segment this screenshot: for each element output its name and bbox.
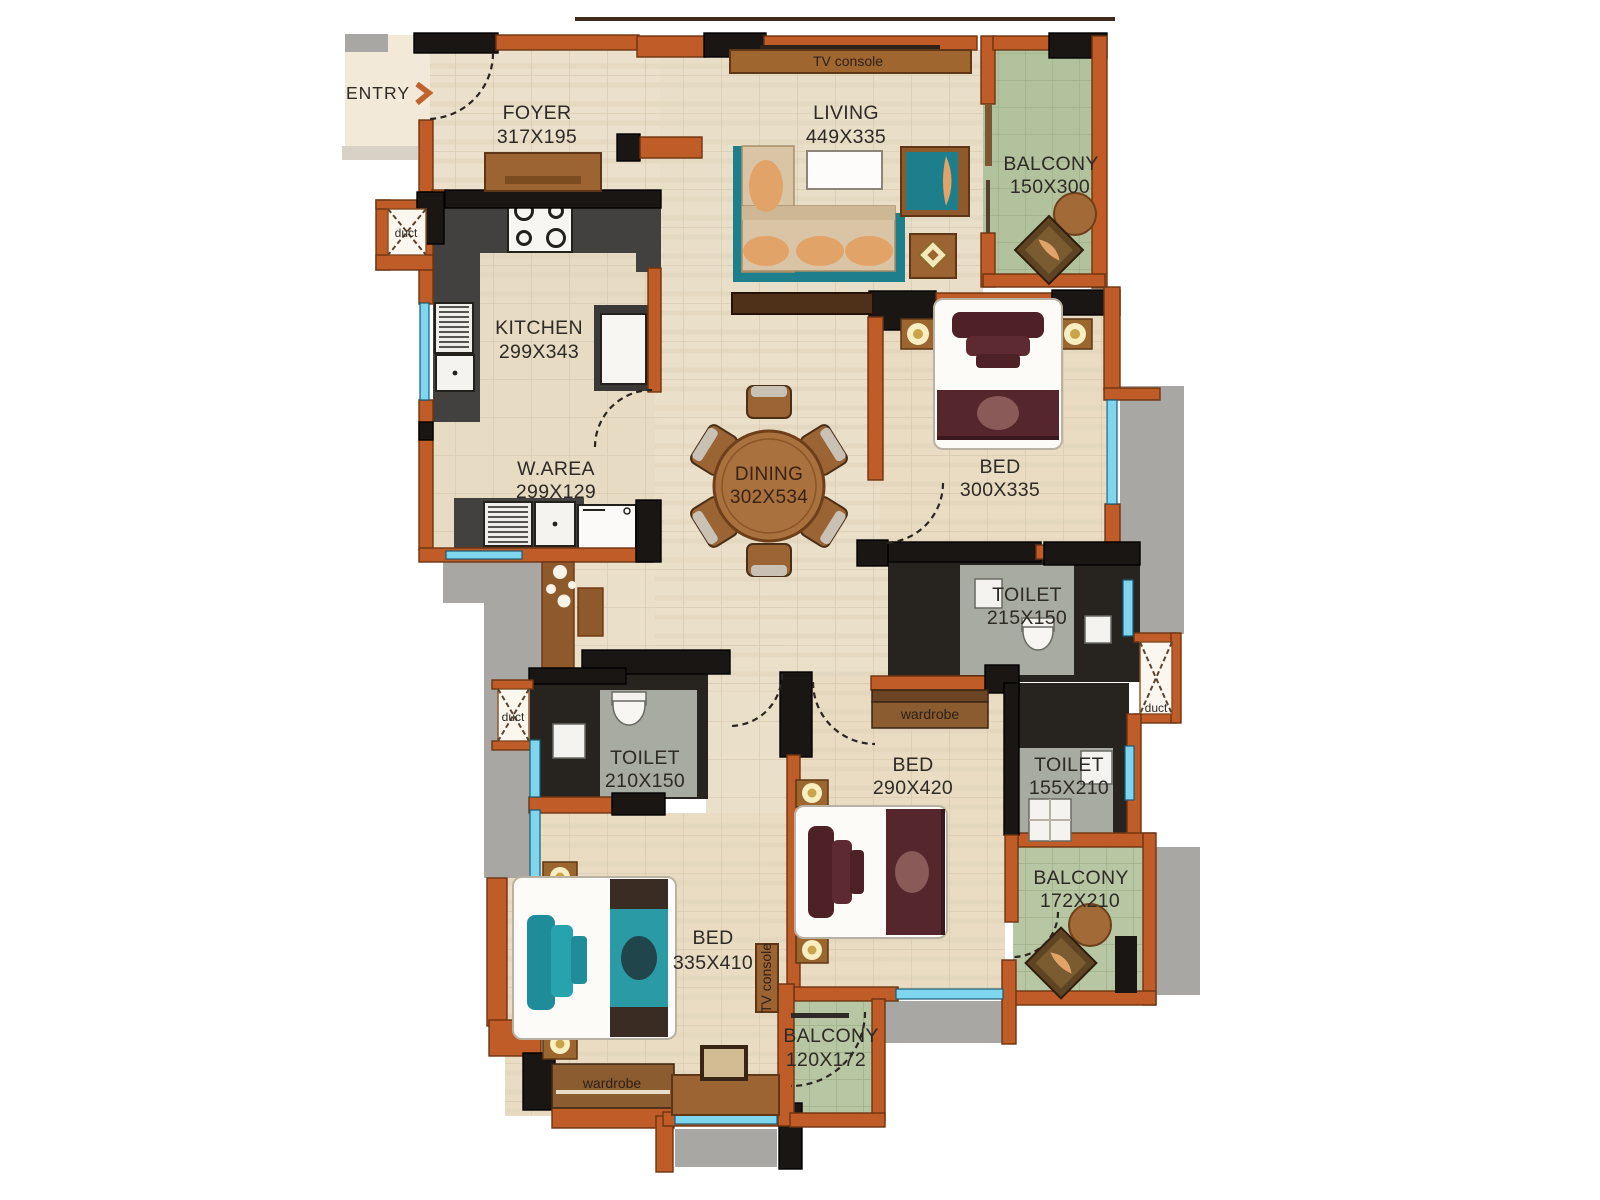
- svg-text:duct: duct: [1145, 701, 1168, 715]
- svg-text:299X343: 299X343: [499, 341, 579, 363]
- svg-text:LIVING: LIVING: [813, 102, 879, 124]
- svg-text:TOILET: TOILET: [992, 584, 1062, 606]
- svg-text:155X210: 155X210: [1029, 777, 1109, 799]
- svg-text:BALCONY: BALCONY: [1003, 153, 1098, 175]
- svg-text:wardrobe: wardrobe: [582, 1075, 642, 1091]
- svg-text:BED: BED: [980, 456, 1021, 478]
- svg-text:300X335: 300X335: [960, 479, 1040, 501]
- svg-text:duct: duct: [502, 710, 525, 724]
- svg-text:449X335: 449X335: [806, 126, 886, 148]
- svg-text:150X300: 150X300: [1010, 176, 1090, 198]
- svg-text:172X210: 172X210: [1040, 890, 1120, 912]
- svg-text:TV console: TV console: [813, 53, 883, 69]
- svg-text:335X410: 335X410: [673, 952, 753, 974]
- svg-text:DINING: DINING: [735, 464, 803, 485]
- svg-text:ENTRY: ENTRY: [346, 83, 410, 103]
- svg-text:290X420: 290X420: [873, 777, 953, 799]
- svg-text:302X534: 302X534: [730, 487, 808, 508]
- svg-text:wardrobe: wardrobe: [900, 706, 960, 722]
- svg-text:TOILET: TOILET: [1034, 754, 1104, 776]
- svg-text:120X172: 120X172: [786, 1049, 866, 1071]
- svg-text:BALCONY: BALCONY: [1033, 867, 1128, 889]
- svg-text:317X195: 317X195: [497, 126, 577, 148]
- svg-text:TV console: TV console: [758, 943, 774, 1013]
- svg-text:BED: BED: [693, 927, 734, 949]
- svg-text:BALCONY: BALCONY: [783, 1025, 878, 1047]
- svg-text:299X129: 299X129: [516, 481, 596, 503]
- svg-text:215X150: 215X150: [987, 607, 1067, 629]
- svg-text:KITCHEN: KITCHEN: [495, 317, 583, 339]
- svg-text:duct: duct: [395, 226, 418, 240]
- svg-text:210X150: 210X150: [605, 770, 685, 792]
- svg-text:TOILET: TOILET: [610, 747, 680, 769]
- svg-text:FOYER: FOYER: [503, 102, 572, 124]
- svg-text:W.AREA: W.AREA: [517, 458, 595, 480]
- svg-text:BED: BED: [893, 754, 934, 776]
